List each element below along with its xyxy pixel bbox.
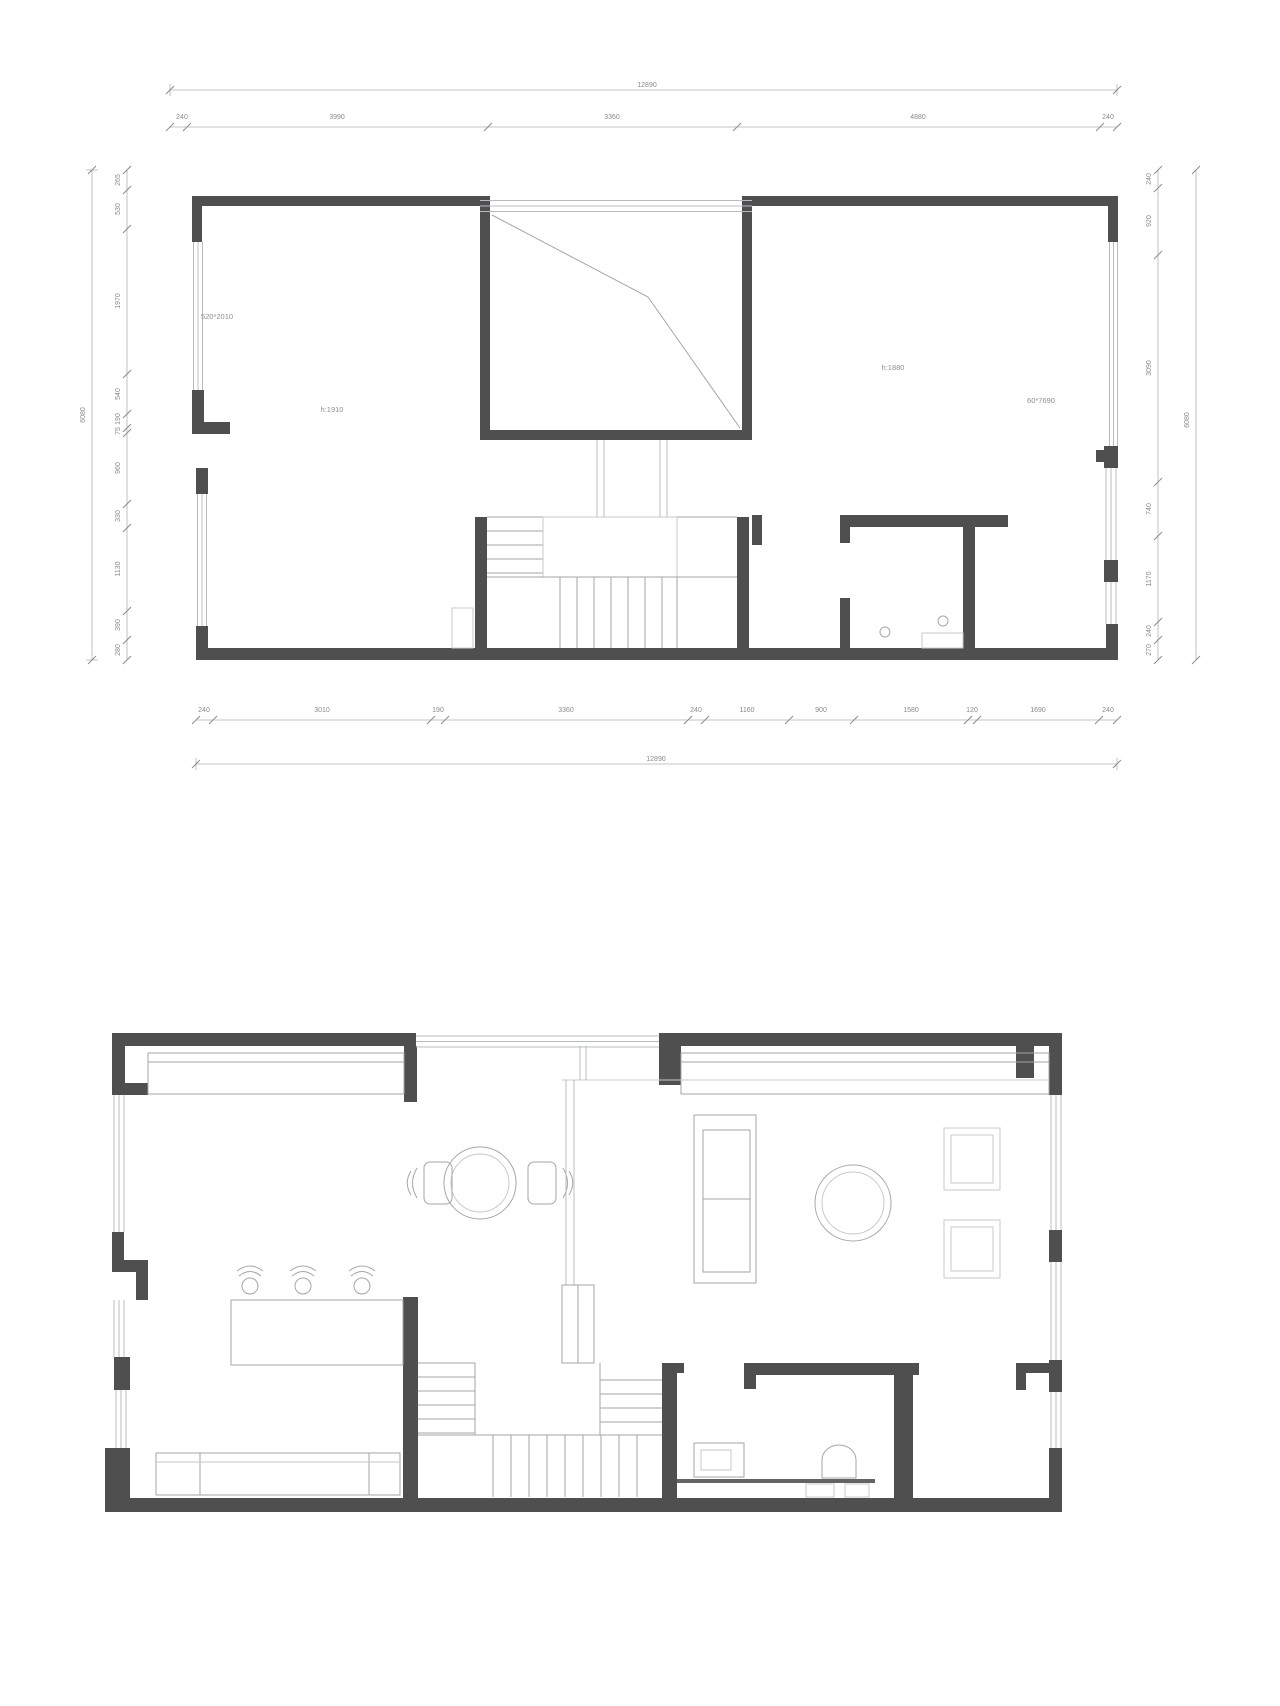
dim-right-overall: 6080 bbox=[1184, 412, 1192, 428]
dim-left-seg-4: 190 bbox=[115, 413, 123, 425]
dim-top-seg-0: 240 bbox=[176, 114, 188, 122]
upper-walls bbox=[192, 196, 1118, 660]
lower-windows bbox=[114, 1036, 1061, 1448]
dim-bottom-seg-8: 120 bbox=[966, 707, 978, 715]
dim-right-seg-4: 1170 bbox=[1146, 571, 1154, 586]
dim-left-seg-1: 530 bbox=[115, 203, 123, 215]
dim-top-seg-2: 3360 bbox=[604, 114, 620, 122]
dim-left-seg-2: 1970 bbox=[115, 293, 123, 309]
upper-stairwell-void bbox=[492, 215, 740, 428]
coffee-table bbox=[815, 1165, 891, 1241]
dim-left-seg-8: 1130 bbox=[115, 561, 123, 576]
lower-window-seats bbox=[148, 1053, 1049, 1094]
dim-bottom-seg-6: 900 bbox=[815, 707, 827, 715]
dim-bottom-overall: 12890 bbox=[646, 756, 665, 764]
dim-left-seg-10: 280 bbox=[115, 644, 123, 656]
dim-left-seg-6: 960 bbox=[115, 462, 123, 474]
label-height-left: h:1910 bbox=[321, 406, 344, 414]
dim-bottom-seg-0: 240 bbox=[198, 707, 210, 715]
lower-bathroom-fixtures bbox=[694, 1443, 869, 1497]
dim-right-seg-1: 920 bbox=[1146, 215, 1154, 227]
dim-top-overall: 12890 bbox=[637, 82, 656, 90]
lower-cabinet bbox=[156, 1453, 400, 1495]
plan-drawing bbox=[0, 0, 1280, 1706]
upper-bathroom-walls bbox=[840, 515, 1008, 650]
dining-table bbox=[407, 1147, 573, 1219]
upper-dimension-lines bbox=[86, 84, 1200, 770]
lower-stairs bbox=[418, 1363, 662, 1497]
dim-right-seg-0: 240 bbox=[1146, 173, 1154, 185]
label-window-size: 520*2010 bbox=[201, 313, 233, 321]
lower-plan bbox=[105, 1033, 1062, 1512]
dim-right-seg-6: 270 bbox=[1146, 644, 1154, 656]
dim-bottom-seg-2: 190 bbox=[432, 707, 444, 715]
dim-bottom-seg-5: 1160 bbox=[739, 707, 754, 715]
upper-stairs bbox=[452, 440, 737, 648]
dim-bottom-seg-3: 3360 bbox=[558, 707, 574, 715]
dim-left-seg-5: 75 bbox=[115, 427, 123, 435]
dim-left-seg-7: 330 bbox=[115, 510, 123, 522]
floor-plan-sheet: 12890 240 3990 3360 4880 240 240 3010 19… bbox=[0, 0, 1280, 1706]
dim-top-seg-4: 240 bbox=[1102, 114, 1114, 122]
dim-right-seg-2: 3090 bbox=[1146, 360, 1154, 376]
dim-top-seg-3: 4880 bbox=[910, 114, 926, 122]
dim-bottom-seg-1: 3010 bbox=[314, 707, 330, 715]
dim-left-seg-9: 390 bbox=[115, 619, 123, 631]
sofa bbox=[694, 1115, 756, 1283]
dim-right-seg-3: 740 bbox=[1146, 503, 1154, 515]
upper-bathroom-fixtures bbox=[880, 616, 963, 648]
dim-top-seg-1: 3990 bbox=[329, 114, 345, 122]
bar-counter bbox=[231, 1300, 403, 1365]
dim-left-overall: 6080 bbox=[80, 407, 88, 423]
dim-bottom-seg-10: 240 bbox=[1102, 707, 1114, 715]
dim-bottom-seg-7: 1580 bbox=[903, 707, 919, 715]
dim-bottom-seg-9: 1690 bbox=[1030, 707, 1046, 715]
dim-right-seg-5: 240 bbox=[1146, 625, 1154, 637]
dim-left-seg-0: 265 bbox=[115, 174, 123, 186]
label-railing-size: 60*7690 bbox=[1027, 397, 1055, 405]
side-tables bbox=[944, 1128, 1000, 1278]
dim-bottom-seg-4: 240 bbox=[690, 707, 702, 715]
dim-left-seg-3: 540 bbox=[115, 388, 123, 400]
bar-stools bbox=[237, 1266, 375, 1294]
label-height-right: h:1880 bbox=[882, 364, 905, 372]
upper-plan bbox=[86, 84, 1200, 770]
